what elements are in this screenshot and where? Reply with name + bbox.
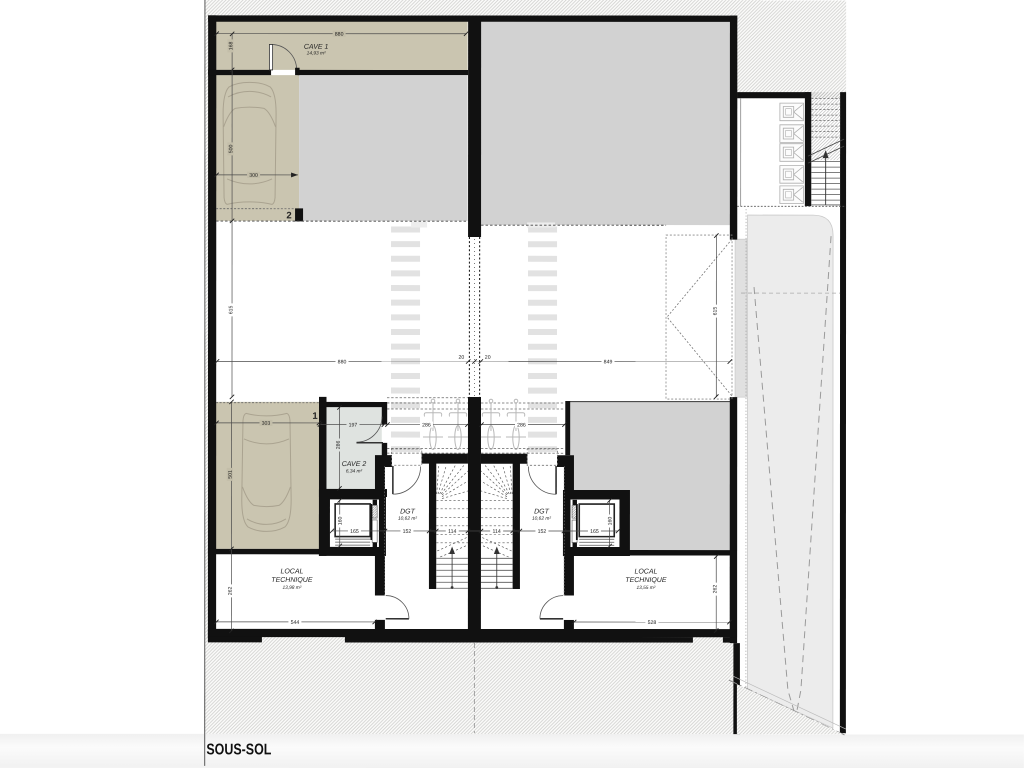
svg-text:TECHNIQUE: TECHNIQUE (625, 577, 667, 584)
svg-text:300: 300 (249, 173, 258, 179)
svg-text:160: 160 (338, 516, 344, 525)
svg-text:152: 152 (538, 529, 547, 535)
svg-text:CAVE 2: CAVE 2 (342, 461, 367, 468)
svg-text:197: 197 (349, 422, 358, 428)
svg-text:20: 20 (459, 355, 465, 361)
svg-text:10,62 m²: 10,62 m² (532, 516, 551, 522)
svg-text:1: 1 (312, 411, 318, 422)
svg-text:152: 152 (403, 529, 412, 535)
svg-text:262: 262 (228, 586, 234, 595)
svg-text:262: 262 (713, 585, 719, 594)
svg-text:DGT: DGT (534, 509, 550, 516)
svg-text:286: 286 (422, 422, 431, 428)
svg-text:CAVE 1: CAVE 1 (304, 44, 329, 51)
svg-text:10,62 m²: 10,62 m² (398, 516, 417, 522)
svg-text:SOUS-SOL: SOUS-SOL (206, 741, 271, 758)
svg-text:168: 168 (228, 41, 234, 50)
svg-text:160: 160 (608, 517, 614, 526)
svg-text:165: 165 (350, 529, 359, 535)
svg-text:TECHNIQUE: TECHNIQUE (271, 577, 313, 584)
svg-text:DGT: DGT (400, 508, 416, 515)
svg-text:880: 880 (335, 32, 344, 38)
svg-text:14,93 m²: 14,93 m² (307, 51, 326, 57)
svg-text:501: 501 (228, 470, 234, 479)
svg-text:500: 500 (228, 144, 234, 153)
svg-text:6,34 m²: 6,34 m² (346, 468, 363, 474)
svg-text:13,98 m²: 13,98 m² (282, 585, 301, 591)
svg-text:615: 615 (228, 305, 234, 314)
svg-text:LOCAL: LOCAL (280, 568, 303, 575)
svg-text:20: 20 (485, 355, 491, 361)
svg-text:880: 880 (338, 359, 347, 365)
svg-text:528: 528 (648, 620, 657, 626)
svg-text:544: 544 (291, 620, 300, 626)
svg-text:2: 2 (286, 210, 291, 221)
svg-text:13,55 m²: 13,55 m² (636, 585, 655, 591)
svg-text:114: 114 (493, 529, 501, 535)
svg-text:615: 615 (713, 307, 719, 316)
svg-text:165: 165 (590, 529, 599, 535)
svg-text:849: 849 (604, 359, 613, 365)
svg-text:LOCAL: LOCAL (634, 569, 657, 576)
svg-text:286: 286 (336, 440, 342, 449)
svg-text:303: 303 (262, 421, 271, 427)
svg-text:286: 286 (517, 423, 526, 429)
svg-text:114: 114 (448, 529, 456, 535)
